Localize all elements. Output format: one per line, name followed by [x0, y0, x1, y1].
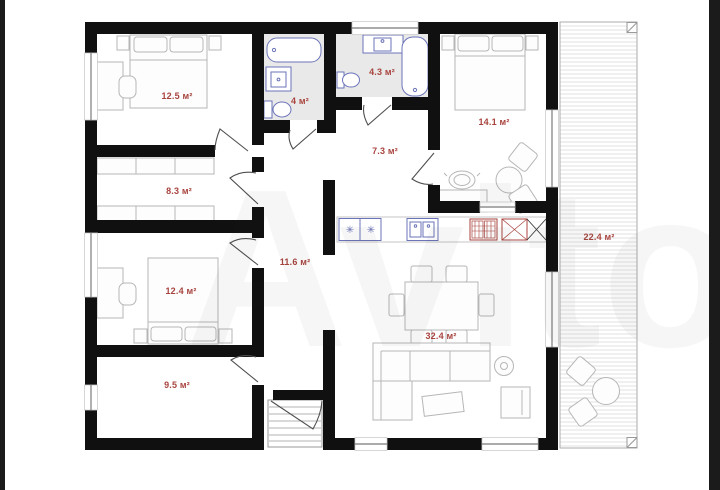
window-icon — [85, 385, 98, 410]
pillow-icon — [185, 327, 216, 341]
wall-segment — [515, 201, 558, 213]
room-label: 8.3 м² — [166, 186, 192, 196]
wall-segment — [252, 34, 264, 145]
kitchen-sink-icon — [407, 219, 438, 241]
toilet-icon — [264, 101, 291, 118]
door-swing-icon — [230, 172, 258, 204]
door-swing-icon — [231, 356, 258, 382]
window-icon — [482, 438, 538, 451]
pass-through-icon — [480, 202, 515, 212]
wall-segment — [317, 120, 336, 133]
wall-segment — [428, 185, 440, 213]
wall-segment — [85, 22, 97, 53]
wall-segment — [85, 410, 97, 450]
door-swing-icon — [364, 105, 392, 125]
room-label: 22.4 м² — [583, 232, 614, 242]
chair-icon — [479, 294, 494, 316]
wall-segment — [97, 145, 215, 157]
round-table-icon — [593, 378, 620, 405]
nightstand-icon — [209, 36, 221, 50]
chair-icon — [119, 283, 136, 305]
chair-icon — [446, 266, 467, 282]
nightstand-icon — [219, 329, 232, 343]
nightstand-icon — [117, 36, 129, 50]
wall-segment — [252, 385, 264, 450]
door-swing-icon — [289, 129, 316, 149]
wall-segment — [323, 180, 335, 255]
hob-burner-icon: ✳ — [346, 225, 354, 236]
pillow-icon — [134, 37, 167, 52]
wall-segment — [324, 22, 336, 133]
wall-segment — [387, 438, 482, 450]
wall-segment — [336, 97, 362, 110]
door-swing-icon — [230, 239, 258, 265]
wall-segment — [85, 120, 97, 233]
vanity-sink-icon — [363, 35, 403, 53]
wardrobe-icon — [97, 158, 214, 222]
pillow-icon — [458, 36, 489, 51]
wall-segment — [97, 220, 252, 233]
wall-segment — [546, 22, 558, 110]
wall-segment — [252, 268, 264, 345]
chair-icon — [411, 266, 432, 282]
wall-segment — [546, 347, 558, 450]
room-label: 14.1 м² — [478, 117, 509, 127]
coffee-table-icon — [422, 392, 464, 417]
room-label: 12.4 м² — [165, 286, 196, 296]
hob-icon: ✳ ✳ — [339, 219, 381, 241]
chair-icon — [389, 294, 404, 316]
window-icon — [546, 110, 559, 187]
nightstand-icon — [134, 329, 147, 343]
nightstand-icon — [526, 36, 538, 50]
fridge-icon — [502, 219, 527, 240]
wall-segment — [440, 201, 480, 213]
bed-icon — [442, 34, 538, 110]
hob-burner-icon: ✳ — [367, 225, 375, 236]
cabinet-x-icon — [527, 219, 546, 240]
appliances — [470, 219, 527, 240]
window-icon — [355, 438, 387, 451]
pillow-icon — [151, 327, 182, 341]
wall-segment — [264, 120, 290, 133]
room-label: 11.6 м² — [280, 257, 311, 267]
floorplan-screenshot: ✳ ✳ — [0, 0, 720, 490]
wall-segment — [273, 390, 323, 400]
dining-table-icon — [405, 282, 478, 330]
wall-segment — [97, 345, 264, 357]
wall-segment — [85, 297, 97, 388]
wall-segment — [252, 207, 264, 238]
window-icon — [352, 22, 418, 35]
bathtub-icon — [267, 38, 321, 62]
wall-segment — [428, 22, 440, 150]
wall-segment — [323, 330, 335, 450]
wall-segment — [335, 438, 355, 450]
room-label: 4.3 м² — [369, 67, 395, 77]
stove-icon — [470, 219, 497, 240]
door-swing-icon — [412, 153, 434, 184]
toilet-icon — [337, 72, 360, 88]
wall-segment — [546, 187, 558, 272]
wall-segment — [85, 438, 264, 450]
room-label: 9.5 м² — [164, 380, 190, 390]
pillow-icon — [170, 37, 203, 52]
pillow-icon — [492, 36, 523, 51]
plant-icon — [495, 357, 514, 376]
bathtub-icon — [402, 37, 428, 96]
room-label: 4 м² — [291, 96, 309, 106]
chair-icon — [119, 76, 136, 98]
terrace-door-icon — [546, 272, 559, 347]
floorplan-drawing: ✳ ✳ — [0, 0, 720, 490]
room-label: 12.5 м² — [161, 91, 192, 101]
stairs-icon — [268, 400, 322, 447]
sink-icon — [266, 67, 291, 91]
window-icon — [85, 53, 98, 120]
wall-segment — [85, 22, 352, 34]
bed-icon — [134, 258, 232, 344]
door-swing-icon — [215, 129, 248, 151]
room-label: 32.4 м² — [425, 331, 456, 341]
wall-segment — [252, 157, 264, 172]
wall-segment — [392, 97, 428, 110]
nightstand-icon — [442, 36, 454, 50]
plant-pot-icon — [444, 171, 480, 189]
window-icon — [85, 233, 98, 297]
room-label: 7.3 м² — [372, 146, 398, 156]
armchair-icon — [501, 387, 530, 418]
